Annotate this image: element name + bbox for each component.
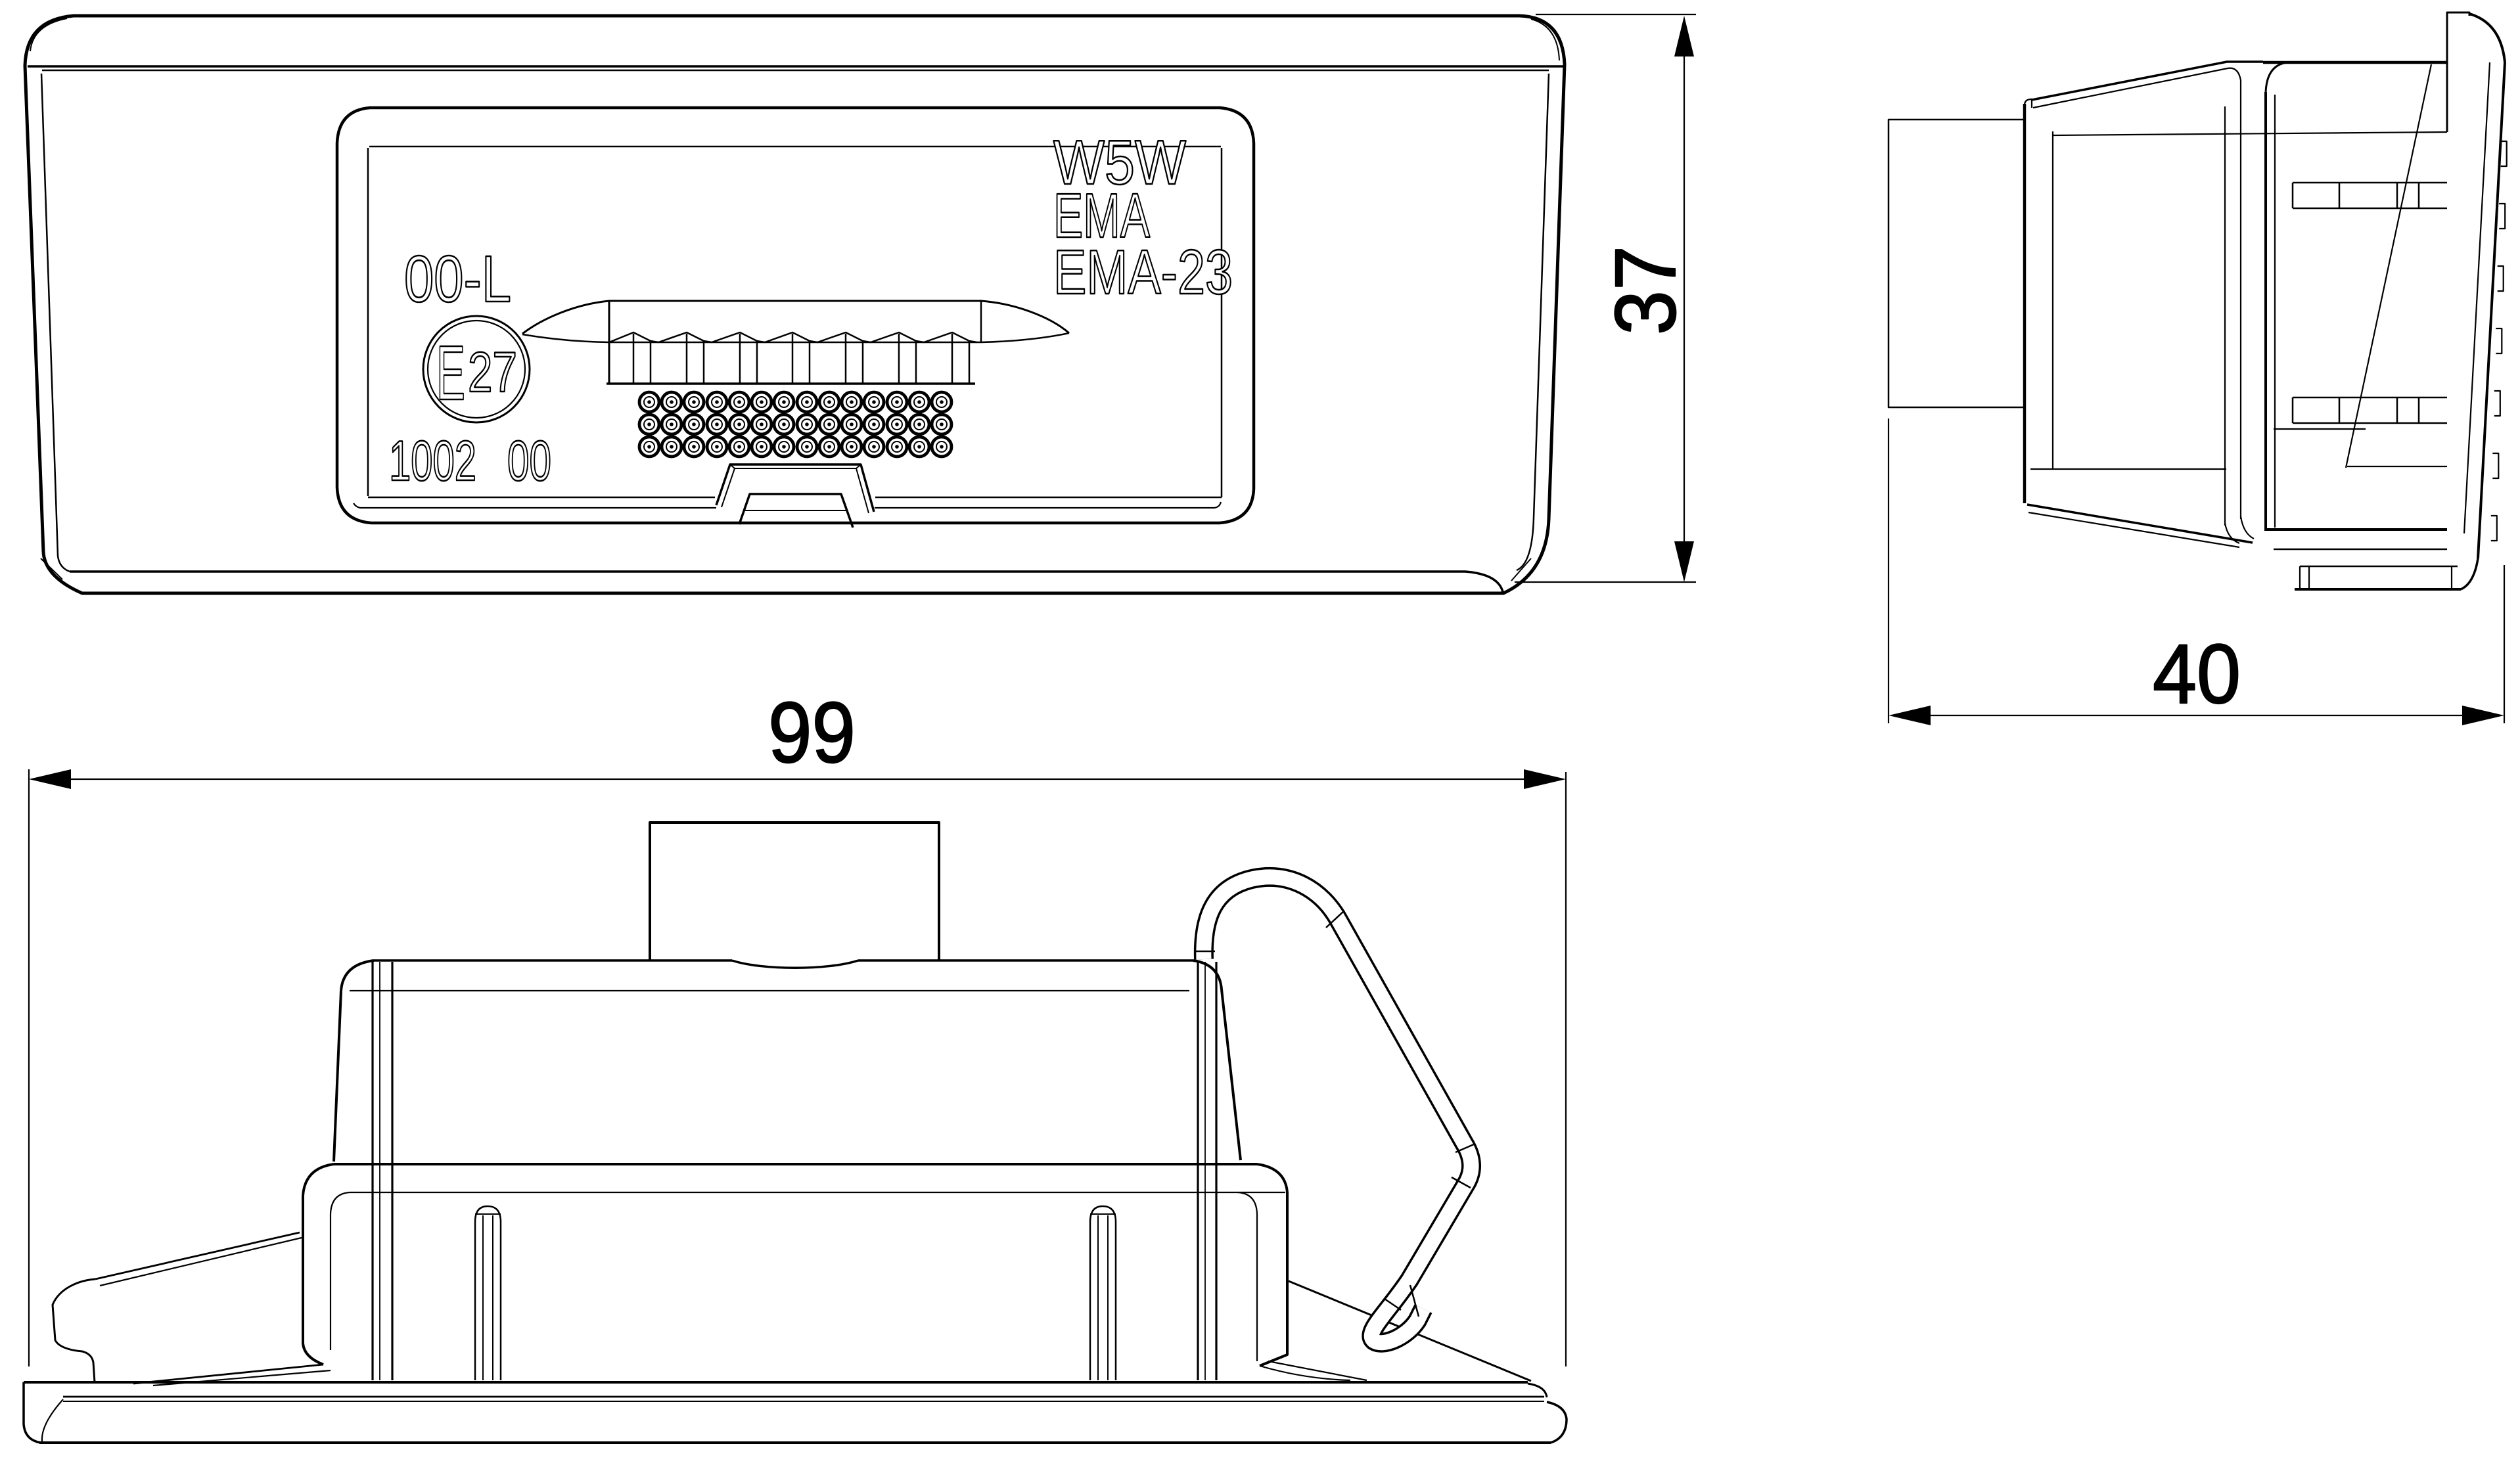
- svg-text:1002: 1002: [389, 430, 476, 493]
- svg-text:27: 27: [468, 341, 517, 404]
- svg-text:99: 99: [768, 684, 856, 780]
- svg-text:00-L: 00-L: [404, 242, 511, 316]
- svg-text:E: E: [436, 330, 465, 417]
- svg-text:37: 37: [1597, 246, 1693, 335]
- svg-text:40: 40: [2153, 627, 2241, 721]
- svg-text:EMA-23: EMA-23: [1053, 237, 1233, 307]
- svg-text:00: 00: [507, 430, 551, 493]
